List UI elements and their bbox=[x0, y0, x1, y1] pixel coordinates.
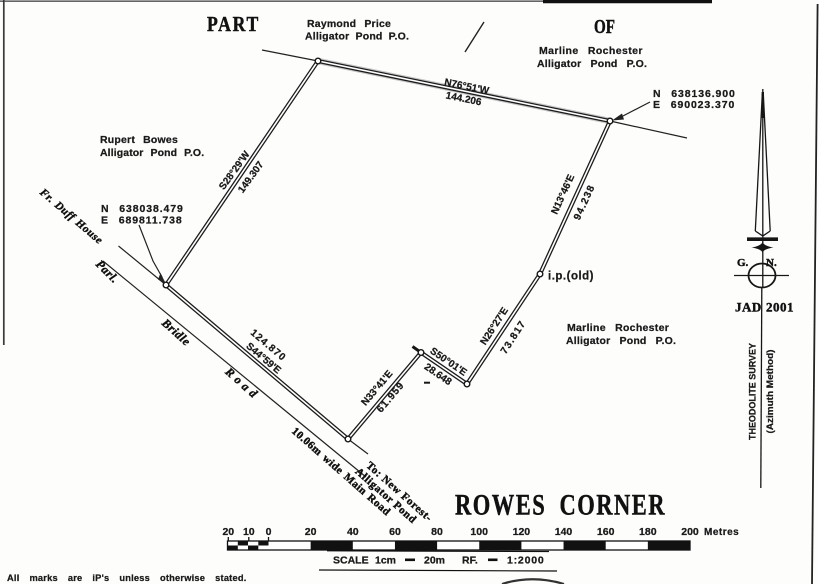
svg-text:1:2000: 1:2000 bbox=[507, 555, 545, 567]
svg-text:N.: N. bbox=[766, 257, 777, 269]
svg-text:G.: G. bbox=[737, 257, 749, 269]
svg-text:ROWES CORNER: ROWES CORNER bbox=[455, 489, 666, 522]
svg-text:Alligator Pond P.O.: Alligator Pond P.O. bbox=[537, 58, 647, 70]
svg-text:20m: 20m bbox=[424, 555, 445, 567]
svg-text:Marline Rochester: Marline Rochester bbox=[539, 45, 643, 57]
svg-text:1cm: 1cm bbox=[375, 555, 396, 567]
svg-text:E 690023.370: E 690023.370 bbox=[653, 99, 735, 111]
svg-text:10: 10 bbox=[243, 526, 255, 538]
svg-text:94.238: 94.238 bbox=[572, 183, 598, 222]
svg-text:40: 40 bbox=[347, 526, 359, 538]
svg-text:60: 60 bbox=[389, 526, 401, 538]
svg-text:73.817: 73.817 bbox=[499, 319, 529, 357]
svg-text:PART: PART bbox=[207, 12, 260, 36]
svg-text:JAD: JAD bbox=[735, 300, 762, 315]
svg-text:OF: OF bbox=[594, 16, 615, 38]
svg-text:(Azimuth Method): (Azimuth Method) bbox=[765, 350, 775, 434]
svg-text:N 638038.479: N 638038.479 bbox=[101, 203, 184, 215]
svg-text:2001: 2001 bbox=[766, 300, 794, 315]
svg-text:140: 140 bbox=[555, 526, 573, 538]
svg-text:Parl.: Parl. bbox=[93, 257, 122, 286]
svg-text:Marline Rochester: Marline Rochester bbox=[567, 322, 669, 334]
svg-text:0: 0 bbox=[266, 526, 272, 538]
svg-text:20: 20 bbox=[222, 526, 234, 538]
svg-text:80: 80 bbox=[431, 526, 443, 538]
svg-text:120: 120 bbox=[513, 526, 531, 538]
svg-text:N13°46'E: N13°46'E bbox=[550, 173, 578, 217]
svg-text:200: 200 bbox=[681, 526, 699, 538]
svg-text:All marks are iP's unless othe: All marks are iP's unless otherwise stat… bbox=[7, 573, 247, 583]
svg-text:Rupert Bowes: Rupert Bowes bbox=[100, 134, 178, 146]
svg-text:RF.: RF. bbox=[462, 555, 478, 567]
svg-text:i.p.(old): i.p.(old) bbox=[548, 271, 594, 283]
svg-text:Alligator Pond P.O.: Alligator Pond P.O. bbox=[566, 335, 676, 347]
svg-text:160: 160 bbox=[597, 526, 615, 538]
svg-text:E 689811.738: E 689811.738 bbox=[101, 215, 183, 227]
svg-text:180: 180 bbox=[639, 526, 657, 538]
svg-text:Metres: Metres bbox=[704, 527, 739, 538]
svg-text:20: 20 bbox=[305, 526, 317, 538]
svg-text:Alligator Pond P.O.: Alligator Pond P.O. bbox=[100, 147, 204, 159]
svg-text:Alligator Pond P.O.: Alligator Pond P.O. bbox=[305, 31, 409, 43]
svg-text:Road: Road bbox=[222, 364, 263, 403]
svg-text:Raymond Price: Raymond Price bbox=[307, 18, 391, 30]
svg-text:SCALE: SCALE bbox=[333, 555, 369, 567]
svg-text:THEODOLITE SURVEY: THEODOLITE SURVEY bbox=[748, 342, 759, 440]
svg-text:Bridle: Bridle bbox=[158, 315, 193, 349]
svg-text:Fr. Duff House: Fr. Duff House bbox=[37, 186, 105, 247]
svg-text:100: 100 bbox=[470, 526, 488, 538]
